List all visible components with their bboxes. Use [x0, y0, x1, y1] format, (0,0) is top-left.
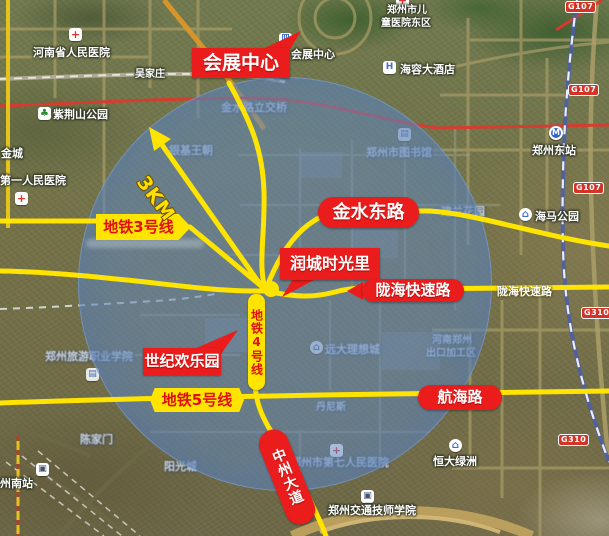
- convention-center-label: 会展中心: [192, 48, 290, 78]
- metro-line3-label: 地铁3号线: [96, 214, 191, 240]
- zhongzhou-avenue-label: 中州大道: [254, 425, 319, 529]
- map-canvas[interactable]: + 河南省人民医院 吴家庄 ♣ 紫荆山公园 金城 + 第一人民医院 金水路立交桥…: [0, 0, 609, 536]
- century-park-label: 世纪欢乐园: [143, 348, 221, 375]
- longhai-expwy-label: 陇海快速路: [362, 279, 464, 302]
- metro-line5-label: 地铁5号线: [150, 388, 244, 412]
- runcheng-project-label: 润城时光里: [280, 248, 380, 280]
- hanghai-road-label: 航海路: [418, 385, 502, 410]
- map-poi-label: 陇海快速路: [497, 286, 552, 297]
- annotation-labels-layer: 会展中心 润城时光里 世纪欢乐园 金水东路 陇海快速路 航海路 中州大道 地铁3…: [0, 0, 609, 536]
- jinshui-east-road-label: 金水东路: [318, 197, 419, 228]
- metro-line4-label: 地铁4号线: [248, 294, 265, 390]
